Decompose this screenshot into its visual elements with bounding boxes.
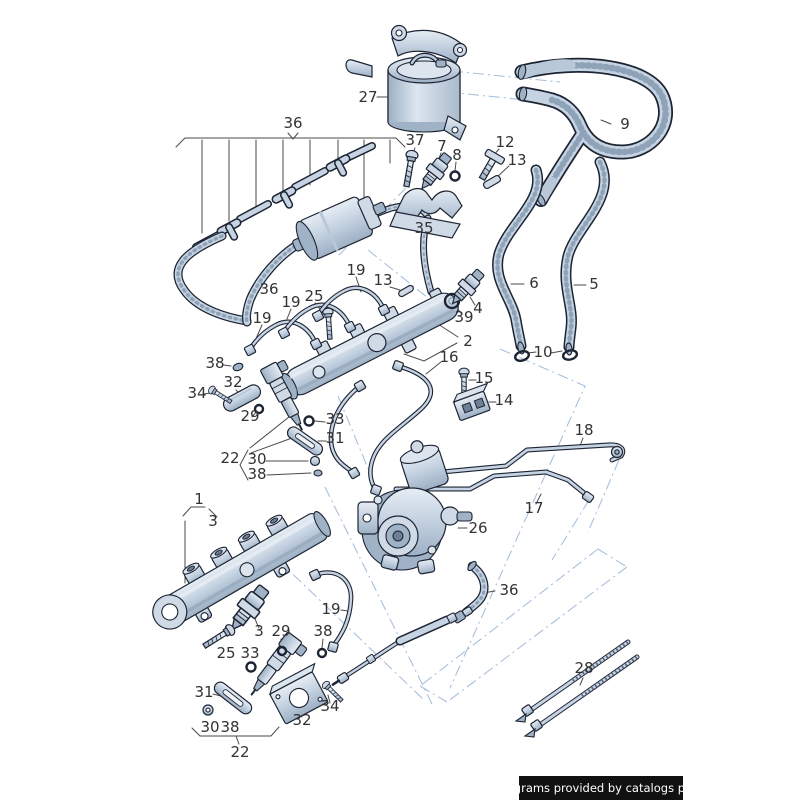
bolt-25: [323, 308, 335, 340]
callout-19-d: 19: [321, 600, 340, 618]
callout-30-b: 30: [200, 718, 219, 736]
callout-28: 28: [574, 659, 593, 677]
seal-38-lower: [318, 649, 326, 657]
callout-19-a: 19: [346, 261, 365, 279]
callout-3-b: 3: [254, 622, 264, 640]
nut-33-lower: [247, 663, 256, 672]
sensor-and-bracket-group: [390, 149, 505, 238]
callout-8: 8: [452, 146, 462, 164]
callout-31-b: 31: [194, 683, 213, 701]
callout-19-b: 19: [281, 293, 300, 311]
callout-34-a: 34: [187, 384, 206, 402]
callout-25-a: 25: [304, 287, 323, 305]
callout-26: 26: [468, 519, 487, 537]
callout-32-a: 32: [223, 373, 242, 391]
footer-text: Diagrams provided by catalogs parts: [495, 781, 708, 795]
callout-16: 16: [439, 348, 458, 366]
callout-4: 4: [473, 299, 483, 317]
washer-38b-upper: [314, 470, 322, 476]
callout-27: 27: [358, 88, 377, 106]
callout-5: 5: [589, 275, 599, 293]
sensor-7: [415, 150, 455, 194]
callout-36-top: 36: [283, 114, 302, 132]
callout-39: 39: [454, 308, 473, 326]
nut-30-upper: [311, 457, 320, 466]
callout-17: 17: [524, 499, 543, 517]
callout-13-a: 13: [507, 151, 526, 169]
clip-13b: [398, 284, 415, 297]
callout-25-b: 25: [216, 644, 235, 662]
diagram-canvas: 27 9 36 37 7 8 12 13 35 36 19 13 25 19 1…: [0, 0, 800, 800]
bolt-37: [401, 150, 419, 188]
footer-badge: Diagrams provided by catalogs parts: [495, 776, 708, 800]
callout-38-a: 38: [205, 354, 224, 372]
callout-31-a: 31: [325, 429, 344, 447]
callout-labels: 27 9 36 37 7 8 12 13 35 36 19 13 25 19 1…: [187, 88, 629, 761]
callout-22-a: 22: [220, 449, 239, 467]
callout-14: 14: [494, 391, 513, 409]
callout-34-b: 34: [320, 697, 339, 715]
callout-15: 15: [474, 369, 493, 387]
callout-38-c: 38: [313, 622, 332, 640]
callout-2: 2: [463, 332, 473, 350]
callout-37: 37: [405, 131, 424, 149]
callout-29-b: 29: [271, 622, 290, 640]
callout-33-b: 33: [240, 644, 259, 662]
fuel-filter: [346, 26, 467, 141]
callout-19-c: 19: [252, 309, 271, 327]
nut-33-upper: [305, 417, 314, 426]
callout-35: 35: [414, 219, 433, 237]
callout-10: 10: [533, 343, 552, 361]
callout-29-a: 29: [240, 407, 259, 425]
callout-36-mid: 36: [259, 280, 278, 298]
callout-36-bottom: 36: [499, 581, 518, 599]
callout-6: 6: [529, 274, 539, 292]
cable-ties-28: [516, 642, 637, 737]
callout-32-b: 32: [292, 711, 311, 729]
callout-3-a: 3: [208, 512, 218, 530]
seal-ring-8: [451, 172, 460, 181]
callout-9: 9: [620, 115, 630, 133]
parts-diagram-page: 27 9 36 37 7 8 12 13 35 36 19 13 25 19 1…: [0, 0, 800, 800]
callout-38-d: 38: [220, 718, 239, 736]
seal-38-upper: [232, 362, 244, 372]
callout-7: 7: [437, 137, 447, 155]
callout-13-b: 13: [373, 271, 392, 289]
callout-22-b: 22: [230, 743, 249, 761]
pump-feed-hose-36: [331, 560, 484, 688]
callout-33-a: 33: [325, 410, 344, 428]
callout-12: 12: [495, 133, 514, 151]
callout-38-b: 38: [247, 465, 266, 483]
callout-1: 1: [194, 490, 204, 508]
clamp-31-lower: [212, 680, 254, 717]
callout-18: 18: [574, 421, 593, 439]
